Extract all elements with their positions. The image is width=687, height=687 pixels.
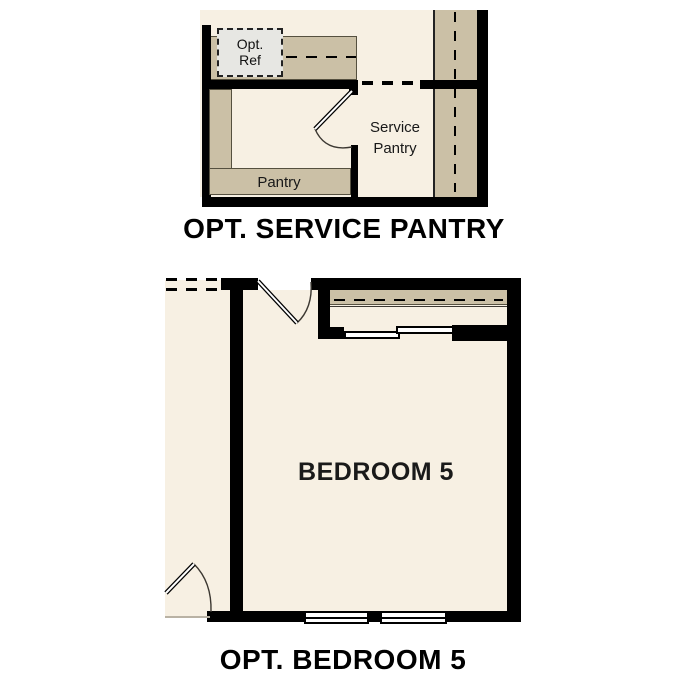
- opt-ref-label-line1: Opt.: [237, 37, 263, 53]
- right-wall: [507, 278, 521, 622]
- floorplan-canvas: Opt. Ref Pantry Service Pantry OPT. SERV…: [0, 0, 687, 687]
- bedroom-room-label: BEDROOM 5: [276, 458, 476, 487]
- sliding-closet-door: [396, 326, 454, 334]
- counter-dashed-line: [286, 56, 356, 58]
- service-pantry-room-label: Service Pantry: [345, 117, 445, 159]
- shelf-dashed-line: [334, 299, 503, 301]
- service-pantry-label-line2: Pantry: [345, 138, 445, 159]
- window-mullion: [306, 617, 367, 619]
- floor-cut-edge: [165, 616, 210, 618]
- opt-ref-label-line2: Ref: [239, 53, 261, 69]
- closet-shelf: [330, 290, 507, 305]
- optional-refrigerator: Opt. Ref: [217, 28, 283, 77]
- bedroom-left-wall: [230, 278, 243, 622]
- cased-opening: [362, 81, 419, 85]
- hall-door-swing: [160, 558, 220, 618]
- bottom-wall: [202, 197, 488, 207]
- door-arc: [297, 282, 311, 323]
- service-pantry-label-line1: Service: [345, 117, 445, 138]
- service-pantry-plan-title: OPT. SERVICE PANTRY: [160, 213, 528, 245]
- sliding-closet-door: [344, 331, 400, 339]
- door-leaf: [258, 281, 297, 323]
- service-pantry-plan: Opt. Ref Pantry Service Pantry OPT. SERV…: [0, 0, 687, 260]
- wall-cut-line: [166, 278, 221, 281]
- wall-centerline: [454, 12, 456, 192]
- closet-opening-stub: [330, 327, 344, 339]
- bedroom-door-swing: [250, 276, 320, 331]
- right-wall: [477, 10, 488, 207]
- top-wall: [311, 278, 521, 290]
- door-arc: [194, 564, 211, 612]
- wall-chase-strip: [433, 10, 477, 197]
- interior-wall: [420, 80, 482, 89]
- bedroom-plan-title: OPT. BEDROOM 5: [165, 644, 521, 676]
- wall-cut-line: [166, 288, 221, 291]
- window-mullion: [382, 617, 445, 619]
- closet-rod-line: [330, 306, 507, 307]
- window: [380, 611, 447, 624]
- bedroom5-plan: BEDROOM 5 OPT. BEDROOM 5: [0, 260, 687, 687]
- window: [304, 611, 369, 624]
- pantry-room-label: Pantry: [229, 172, 329, 193]
- door-leaf: [166, 564, 194, 593]
- closet-opening-stub: [452, 325, 507, 341]
